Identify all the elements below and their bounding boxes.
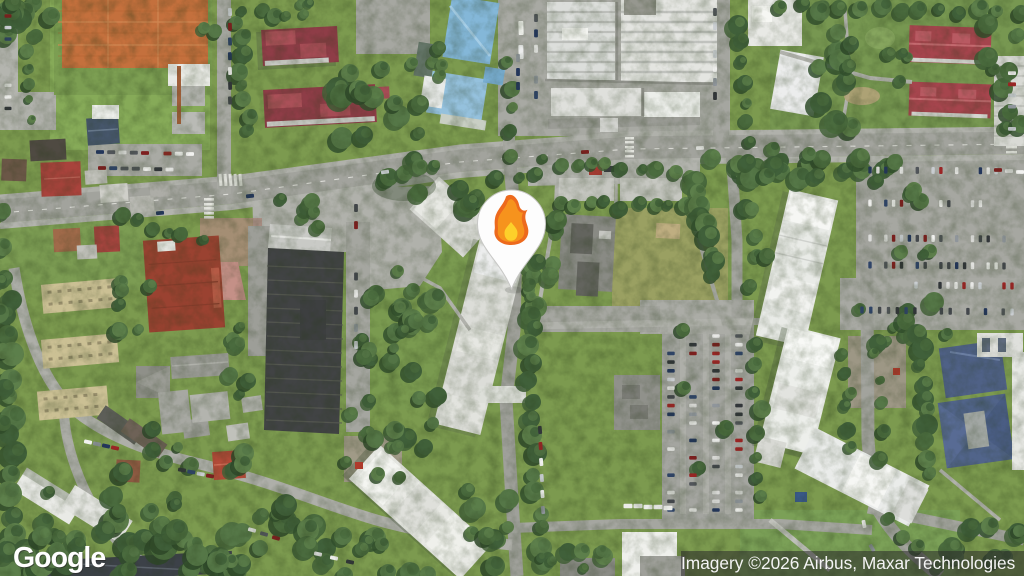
svg-text:Google: Google — [13, 542, 105, 574]
svg-text:Imagery ©2026 Airbus, Maxar Te: Imagery ©2026 Airbus, Maxar Technologies — [681, 553, 1016, 573]
